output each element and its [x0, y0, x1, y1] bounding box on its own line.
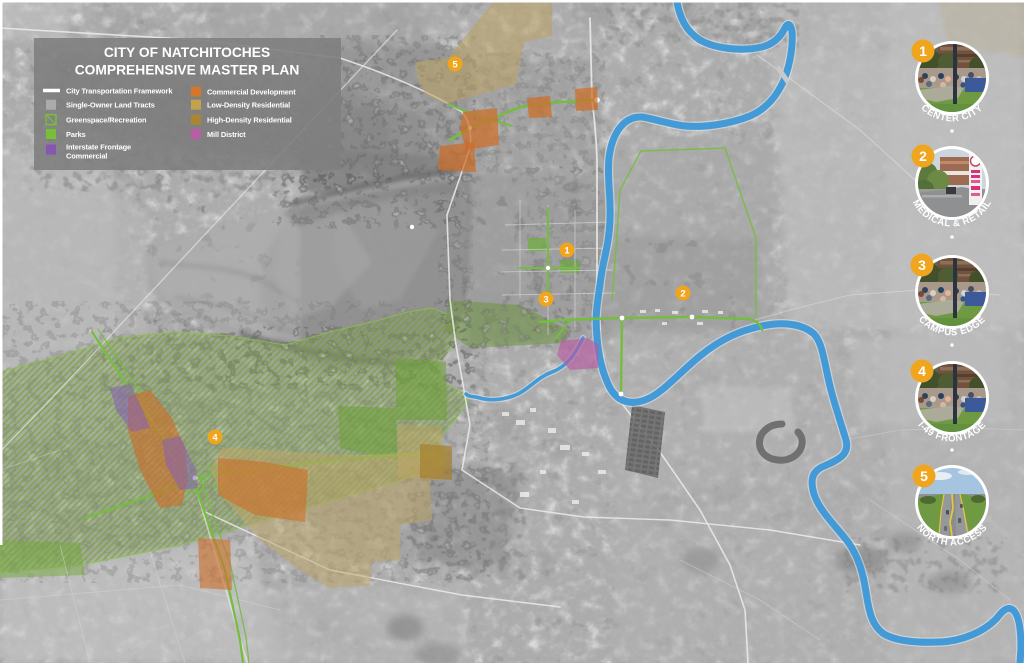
svg-text:2: 2 [919, 148, 927, 164]
svg-text:4: 4 [918, 363, 926, 379]
svg-text:5: 5 [452, 60, 458, 71]
svg-text:3: 3 [918, 257, 926, 273]
svg-text:Interstate Frontage: Interstate Frontage [66, 143, 131, 152]
svg-text:Greenspace/Recreation: Greenspace/Recreation [66, 116, 147, 125]
svg-text:High-Density Residential: High-Density Residential [207, 116, 292, 125]
svg-text:Low-Density Residential: Low-Density Residential [207, 101, 290, 110]
svg-text:4: 4 [212, 433, 218, 444]
svg-text:CITY OF NATCHITOCHES: CITY OF NATCHITOCHES [104, 45, 270, 60]
svg-text:5: 5 [920, 468, 928, 484]
svg-text:1: 1 [564, 246, 570, 257]
svg-text:COMPREHENSIVE MASTER PLAN: COMPREHENSIVE MASTER PLAN [75, 63, 300, 78]
svg-text:Mill District: Mill District [207, 130, 246, 139]
svg-text:Parks: Parks [66, 130, 86, 139]
svg-text:Commercial Development: Commercial Development [207, 88, 296, 97]
svg-text:City Transportation Framework: City Transportation Framework [66, 87, 173, 96]
svg-text:1: 1 [919, 43, 927, 59]
svg-text:3: 3 [543, 295, 548, 306]
svg-text:2: 2 [680, 289, 685, 300]
svg-text:Single-Owner Land Tracts: Single-Owner Land Tracts [66, 101, 155, 110]
svg-text:Commercial: Commercial [66, 152, 107, 161]
